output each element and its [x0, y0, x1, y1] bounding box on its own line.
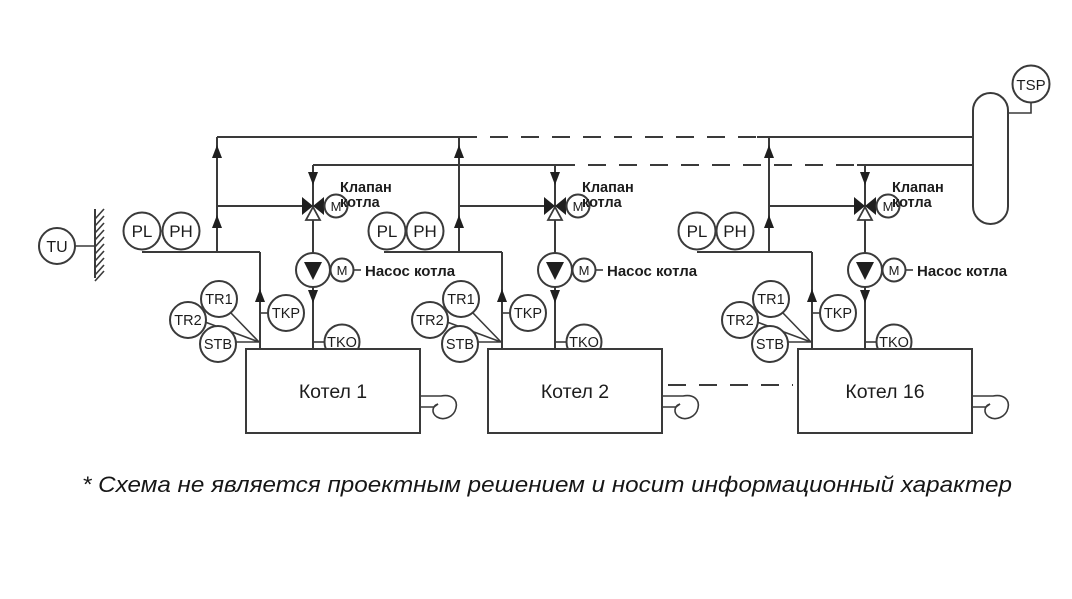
pump-motor-label: M: [889, 263, 900, 278]
sensor-tu-label: TU: [46, 239, 67, 256]
boiler-cascade-diagram: TU TSP M Клапан котла: [0, 0, 1072, 599]
boiler-pump: M Насос котла: [538, 253, 698, 287]
pump-caption: Насос котла: [365, 263, 456, 280]
flow-arrow-up: [764, 145, 774, 158]
valve-caption-line2: котла: [582, 195, 623, 211]
boiler-outlet-pipe: [662, 396, 698, 419]
boiler-1-group: M Клапан котла M Насос котла PL PH TR1 T…: [124, 137, 457, 433]
sensor-stb-label: STB: [756, 337, 784, 353]
boiler-name: Котел 16: [845, 381, 924, 403]
boiler-pump: M Насос котла: [296, 253, 456, 287]
diagram-svg: TU TSP M Клапан котла: [0, 0, 1072, 599]
sensor-stb-label: STB: [446, 337, 474, 353]
sensor-ph-label: PH: [413, 222, 437, 241]
pump-motor-label: M: [579, 263, 590, 278]
valve-caption-line1: Клапан: [892, 180, 944, 196]
boiler-pump: M Насос котла: [848, 253, 1008, 287]
wall-hatch: [95, 209, 104, 281]
boiler-outlet-pipe: [972, 396, 1008, 419]
sensor-tkp-label: TKP: [272, 306, 300, 322]
flow-arrow-down: [308, 172, 318, 185]
sensor-pl-label: PL: [687, 222, 708, 241]
hydraulic-separator-unit: TSP: [973, 66, 1050, 225]
flow-arrow-up: [454, 215, 464, 228]
sensor-tr1-label: TR1: [205, 292, 232, 308]
sensor-pl-label: PL: [132, 222, 153, 241]
valve-caption-line1: Клапан: [340, 180, 392, 196]
sensor-tr2-label: TR2: [174, 313, 201, 329]
tsp-stem: [1008, 103, 1031, 113]
boiler-valve: M Клапан котла: [854, 180, 944, 220]
boiler-valve: M Клапан котла: [544, 180, 634, 220]
sensor-pl-label: PL: [377, 222, 398, 241]
sensor-ph-label: PH: [723, 222, 747, 241]
valve-caption-line1: Клапан: [582, 180, 634, 196]
flow-arrow-up: [255, 289, 265, 302]
boiler-16-group: M Клапан котла M Насос котла PL PH TR1 T…: [679, 137, 1009, 433]
flow-arrow-up: [497, 289, 507, 302]
sensor-tr2-label: TR2: [726, 313, 753, 329]
sensor-tr2-label: TR2: [416, 313, 443, 329]
boiler-name: Котел 1: [299, 381, 367, 403]
boiler-outlet-pipe: [420, 396, 456, 419]
valve-caption-line2: котла: [340, 195, 381, 211]
sensor-ph-label: PH: [169, 222, 193, 241]
valve-caption-line2: котла: [892, 195, 933, 211]
flow-arrow-up: [212, 215, 222, 228]
flow-arrow-up: [764, 215, 774, 228]
flow-arrow-down: [550, 290, 560, 303]
flow-arrow-down: [308, 290, 318, 303]
sensor-tr1-label: TR1: [447, 292, 474, 308]
sensor-stb-label: STB: [204, 337, 232, 353]
footnote: * Схема не является проектным решением и…: [82, 472, 1012, 497]
hydraulic-separator: [973, 93, 1008, 224]
pump-caption: Насос котла: [607, 263, 698, 280]
flow-arrow-down: [860, 172, 870, 185]
pump-motor-label: M: [337, 263, 348, 278]
sensor-tr1-label: TR1: [757, 292, 784, 308]
sensor-tkp-label: TKP: [514, 306, 542, 322]
sensor-tkp-label: TKP: [824, 306, 852, 322]
boiler-name: Котел 2: [541, 381, 609, 403]
flow-arrow-up: [454, 145, 464, 158]
flow-arrow-down: [860, 290, 870, 303]
outdoor-sensor-unit: TU: [39, 209, 104, 281]
pump-caption: Насос котла: [917, 263, 1008, 280]
flow-arrow-down: [550, 172, 560, 185]
flow-arrow-up: [807, 289, 817, 302]
flow-arrow-up: [212, 145, 222, 158]
sensor-tsp-label: TSP: [1016, 77, 1045, 94]
